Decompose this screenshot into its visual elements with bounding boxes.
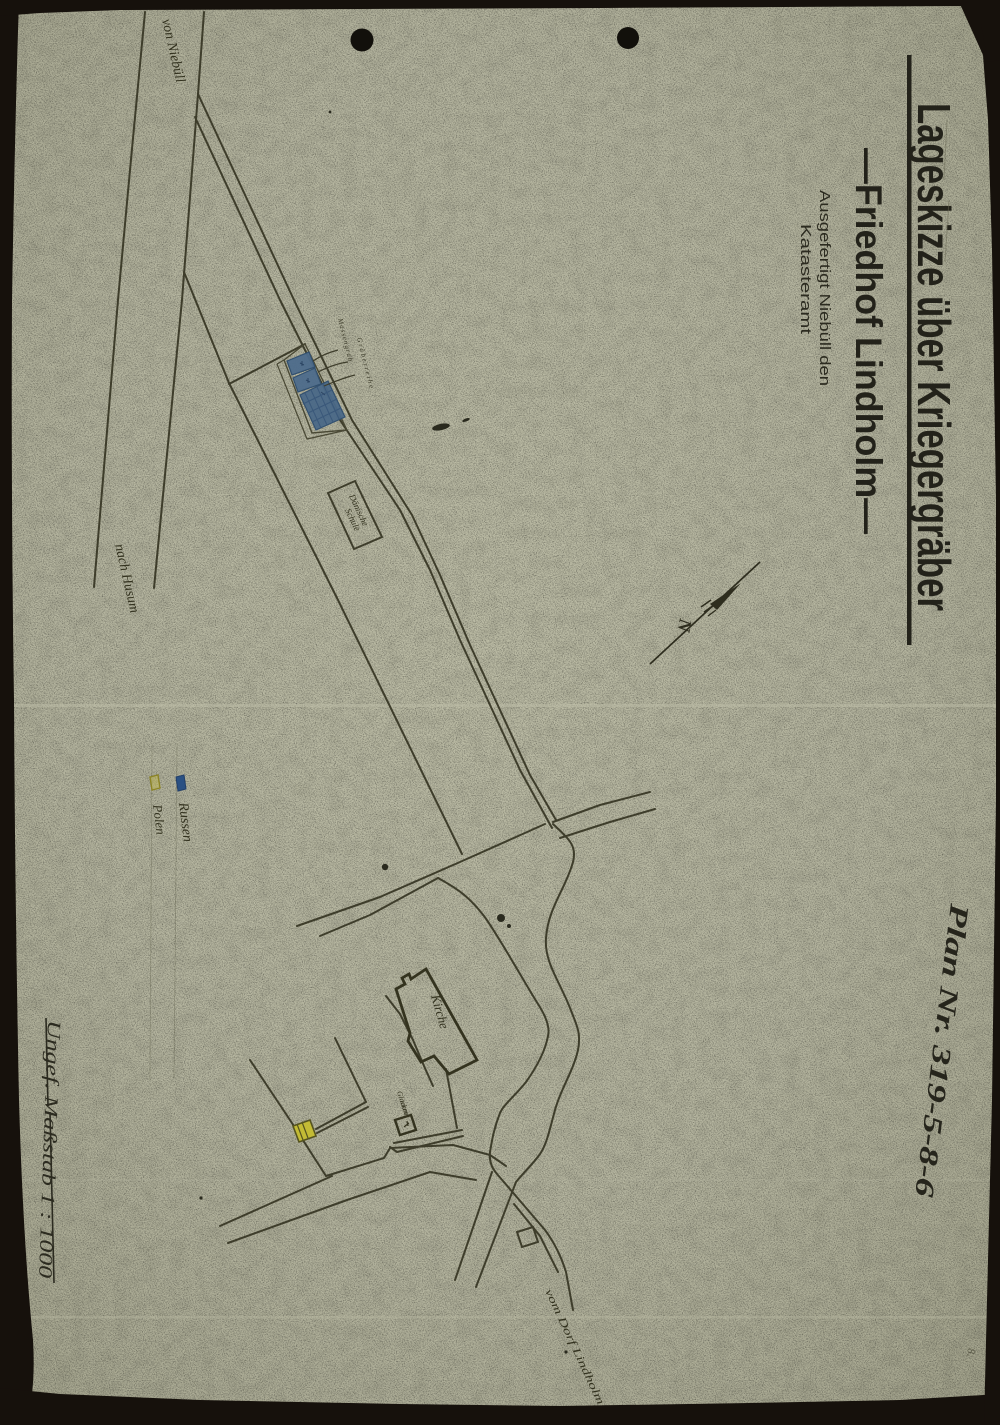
svg-text:Ausgefertigt Niebüll den: Ausgefertigt Niebüll den — [816, 190, 833, 386]
svg-text:Lageskizze über Kriegergräber: Lageskizze über Kriegergräber — [908, 103, 960, 611]
svg-text:—Friedhof Lindholm—: —Friedhof Lindholm— — [848, 148, 889, 534]
svg-text:Katasteramt: Katasteramt — [797, 224, 814, 335]
svg-text:8.: 8. — [964, 1348, 977, 1357]
